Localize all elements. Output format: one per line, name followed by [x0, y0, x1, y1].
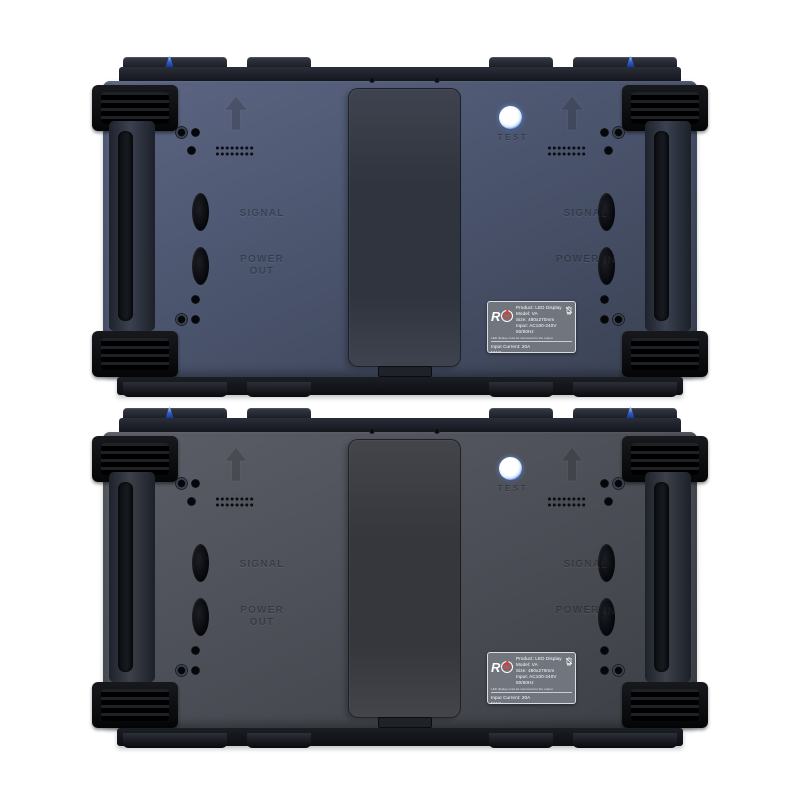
- screw-small: [434, 77, 440, 83]
- screw-hole: [187, 497, 196, 506]
- screw: [612, 477, 625, 490]
- psu-cover-handle: [378, 366, 432, 377]
- handle-recess: [101, 92, 169, 124]
- screw-hole: [191, 666, 200, 675]
- power-out-connector: [192, 598, 209, 636]
- screw-hole: [604, 146, 613, 155]
- spec-label-top: R Product: LED Display Model: VA Size: 4…: [488, 302, 575, 336]
- weee-icon: [565, 656, 573, 666]
- power-in-connector: [598, 598, 615, 636]
- bottom-foot: [247, 382, 311, 397]
- signal-label-right: SIGNAL: [555, 559, 617, 571]
- screw: [175, 664, 188, 677]
- screw: [612, 126, 625, 139]
- product-photo-canvas: TEST SIGNAL POWER OUT SIGNAL POWER IN R: [0, 0, 800, 800]
- power-icon: [501, 310, 513, 322]
- bottom-foot: [573, 733, 677, 748]
- screw: [175, 477, 188, 490]
- weee-icon: [565, 305, 573, 315]
- brand-logo-letter: R: [491, 660, 500, 675]
- spec-input-current: Input Current: 20A MAX: [491, 344, 535, 353]
- power-out-label: POWER OUT: [231, 254, 293, 277]
- test-label: TEST: [491, 133, 535, 142]
- led-cabinet-bottom: TEST SIGNAL POWER OUT SIGNAL POWER IN R: [95, 406, 705, 748]
- power-in-connector: [598, 247, 615, 285]
- power-in-label: POWER IN: [555, 254, 617, 266]
- screw: [612, 664, 625, 677]
- brand-logo: R: [491, 659, 514, 676]
- handle-recess: [631, 443, 699, 475]
- psu-cover: [348, 439, 461, 718]
- screw: [175, 126, 188, 139]
- rail-slot: [654, 131, 669, 321]
- psu-cover-handle: [378, 717, 432, 728]
- spec-product: Product: LED Display: [516, 305, 564, 311]
- handle-recess: [631, 92, 699, 124]
- signal-connector: [192, 193, 209, 231]
- bottom-foot: [123, 733, 227, 748]
- screw-hole: [187, 146, 196, 155]
- corner-handle: [92, 331, 178, 377]
- screw-hole: [191, 646, 200, 655]
- signal-connector: [192, 544, 209, 582]
- bottom-foot: [489, 382, 553, 397]
- spec-label: R Product: LED Display Model: VA Size: 4…: [487, 301, 576, 353]
- screw-hole: [600, 479, 609, 488]
- power-in-label: POWER IN: [555, 605, 617, 617]
- handle-recess: [101, 443, 169, 475]
- brand-logo: R: [491, 308, 514, 325]
- up-arrow-icon: [560, 95, 584, 131]
- test-button: [499, 457, 522, 480]
- test-button: [499, 106, 522, 129]
- vent-grid: [547, 496, 586, 508]
- spec-label-top: R Product: LED Display Model: VA Size: 4…: [488, 653, 575, 687]
- screw-hole: [191, 479, 200, 488]
- screw-hole: [600, 646, 609, 655]
- psu-cover: [348, 88, 461, 367]
- signal-label-right: SIGNAL: [555, 208, 617, 220]
- rail-slot: [654, 482, 669, 672]
- spec-input: Input: AC100-240V 50/60Hz: [516, 674, 564, 686]
- screw-hole: [600, 295, 609, 304]
- power-out-connector: [192, 247, 209, 285]
- bottom-foot: [573, 382, 677, 397]
- side-rail-left: [109, 472, 155, 682]
- spec-product: Product: LED Display: [516, 656, 564, 662]
- side-rail-right: [645, 472, 691, 682]
- screw-small: [434, 428, 440, 434]
- screw-hole: [600, 666, 609, 675]
- vent-grid: [215, 496, 254, 508]
- led-cabinet-top: TEST SIGNAL POWER OUT SIGNAL POWER IN R: [95, 55, 705, 397]
- rail-slot: [118, 131, 133, 321]
- handle-recess: [631, 689, 699, 721]
- side-rail-right: [645, 121, 691, 331]
- handle-recess: [631, 338, 699, 370]
- up-arrow-icon: [560, 446, 584, 482]
- side-rail-left: [109, 121, 155, 331]
- spec-label-bottom: Input Current: 20A MAX Output: AC100-240…: [488, 693, 575, 704]
- vent-grid: [547, 145, 586, 157]
- screw: [612, 313, 625, 326]
- power-out-label: POWER OUT: [231, 605, 293, 628]
- up-arrow-icon: [224, 95, 248, 131]
- signal-label-left: SIGNAL: [231, 208, 293, 220]
- power-icon: [501, 661, 513, 673]
- corner-handle: [622, 682, 708, 728]
- screw-hole: [604, 497, 613, 506]
- screw-small: [369, 77, 375, 83]
- screw-hole: [600, 315, 609, 324]
- test-label: TEST: [491, 484, 535, 493]
- bottom-foot: [489, 733, 553, 748]
- signal-label-left: SIGNAL: [231, 559, 293, 571]
- spec-label: R Product: LED Display Model: VA Size: 4…: [487, 652, 576, 704]
- spec-label-bottom: Input Current: 20A MAX Output: AC100-240…: [488, 342, 575, 353]
- spec-ratings: Input Current: 20A MAX Output: AC100-240…: [491, 344, 535, 353]
- spec-input: Input: AC100-240V 50/60Hz: [516, 323, 564, 335]
- screw-hole: [600, 128, 609, 137]
- handle-recess: [101, 689, 169, 721]
- vent-grid: [215, 145, 254, 157]
- screw-small: [369, 428, 375, 434]
- screw-hole: [191, 128, 200, 137]
- screw-hole: [191, 295, 200, 304]
- handle-recess: [101, 338, 169, 370]
- up-arrow-icon: [224, 446, 248, 482]
- corner-handle: [622, 331, 708, 377]
- bottom-foot: [247, 733, 311, 748]
- spec-ratings: Input Current: 20A MAX Output: AC100-240…: [491, 695, 535, 704]
- rail-slot: [118, 482, 133, 672]
- bottom-foot: [123, 382, 227, 397]
- screw: [175, 313, 188, 326]
- screw-hole: [191, 315, 200, 324]
- brand-logo-letter: R: [491, 309, 500, 324]
- spec-input-current: Input Current: 20A MAX: [491, 695, 535, 704]
- corner-handle: [92, 682, 178, 728]
